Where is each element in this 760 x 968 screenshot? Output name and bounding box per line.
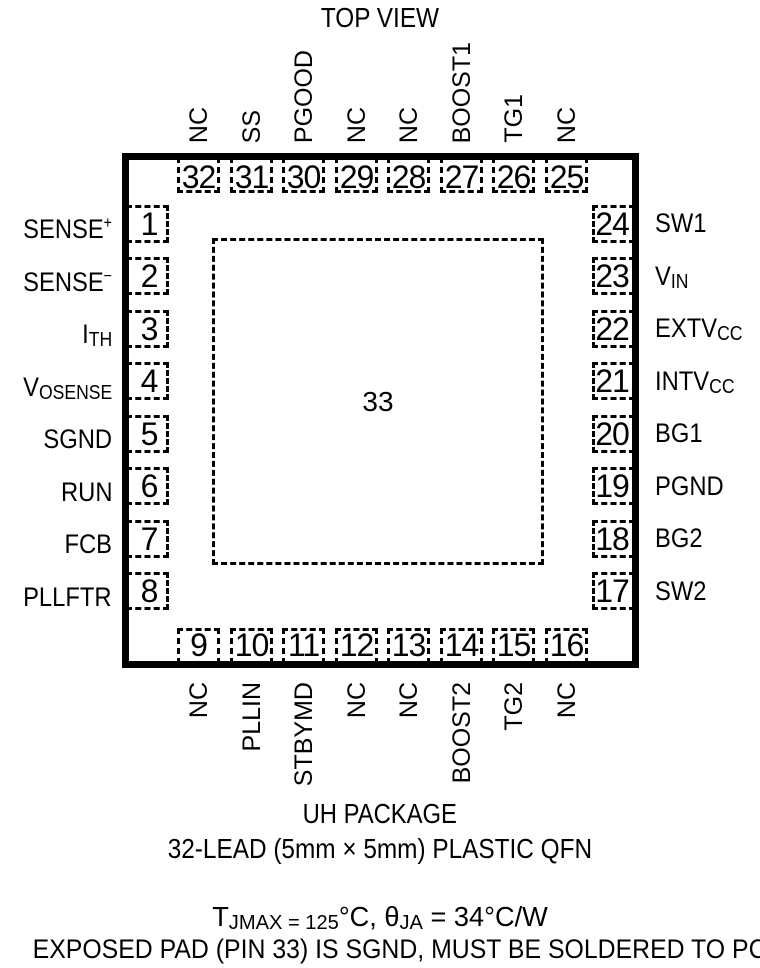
pin-box-4: 4 xyxy=(126,362,169,400)
pin-number-1: 1 xyxy=(141,208,158,240)
pin-box-18: 18 xyxy=(592,520,635,558)
label-sup: + xyxy=(104,214,112,232)
pin-label-3: ITH xyxy=(78,311,112,345)
pin-number-15: 15 xyxy=(497,629,531,661)
exposed-pad-note: EXPOSED PAD (PIN 33) IS SGND, MUST BE SO… xyxy=(0,934,760,964)
pin-label-13: NC xyxy=(394,682,424,718)
pin-label-15: TG2 xyxy=(499,682,529,731)
pin-box-13: 13 xyxy=(387,628,430,664)
thermal-theta-sub: JA xyxy=(400,911,423,934)
label-base: V xyxy=(655,261,671,291)
top-view-title-text: TOP VIEW xyxy=(321,3,439,33)
pin-label-23: VIN xyxy=(655,259,693,293)
pin-label-25: NC xyxy=(552,107,582,143)
label-sub: CC xyxy=(709,376,734,398)
label-sub: OSENSE xyxy=(39,382,112,404)
pin-label-21: INTVCC xyxy=(655,364,745,398)
pin-label-10: PLLIN xyxy=(237,682,267,751)
pin-number-13: 13 xyxy=(392,629,426,661)
label-base: PLLFTR xyxy=(24,582,112,612)
exposed-pad: 33 xyxy=(212,238,544,565)
package-outline: 32 31 30 29 28 27 26 25 1 2 3 4 5 6 7 8 … xyxy=(122,153,639,668)
pin-label-5: SGND xyxy=(34,416,112,450)
pin-box-23: 23 xyxy=(592,257,635,295)
pin-number-24: 24 xyxy=(595,208,629,240)
pin-box-32: 32 xyxy=(177,157,220,193)
pin-box-1: 1 xyxy=(126,205,169,243)
label-sub: TH xyxy=(89,329,112,351)
label-base: SENSE xyxy=(23,214,104,244)
pin-number-14: 14 xyxy=(445,629,479,661)
pin-number-32: 32 xyxy=(182,161,216,193)
pin-label-20: BG1 xyxy=(655,416,709,450)
pin-box-24: 24 xyxy=(592,205,635,243)
qfn-pinout-figure: TOP VIEW NC SS PGOOD NC NC BOOST1 TG1 NC… xyxy=(0,0,760,968)
pin-number-4: 4 xyxy=(141,365,158,397)
package-description: 32-LEAD (5mm × 5mm) PLASTIC QFN xyxy=(0,834,760,864)
pin-box-30: 30 xyxy=(282,157,325,193)
pin-label-4: VOSENSE xyxy=(11,364,112,398)
thermal-t: T xyxy=(212,901,229,932)
pin-number-19: 19 xyxy=(595,470,629,502)
pin-label-29: NC xyxy=(342,107,372,143)
pin-label-30: PGOOD xyxy=(289,50,319,143)
thermal-note-text: TJMAX = 125°C, θJA = 34°C/W xyxy=(212,902,548,935)
thermal-tail: = 34°C/W xyxy=(423,901,548,932)
pin-box-17: 17 xyxy=(592,572,635,610)
pin-number-27: 27 xyxy=(445,161,479,193)
pin-label-11: STBYMD xyxy=(289,682,319,786)
pin-box-9: 9 xyxy=(177,628,220,664)
pin-box-14: 14 xyxy=(440,628,483,664)
pin-label-18: BG2 xyxy=(655,521,709,555)
pin-number-25: 25 xyxy=(550,161,584,193)
pin-label-2: SENSE− xyxy=(11,259,112,293)
thermal-mid: °C, θ xyxy=(339,901,400,932)
thermal-t-sub: JMAX = 125 xyxy=(229,911,339,934)
label-base: EXTV xyxy=(655,313,717,343)
pin-number-28: 28 xyxy=(392,161,426,193)
exposed-pad-number: 33 xyxy=(362,386,393,418)
pin-box-7: 7 xyxy=(126,520,169,558)
package-name: UH PACKAGE xyxy=(0,799,760,829)
label-sup: − xyxy=(104,267,112,285)
pin-label-1: SENSE+ xyxy=(11,206,112,240)
label-base: FCB xyxy=(64,529,112,559)
pin-number-5: 5 xyxy=(141,418,158,450)
pin-box-20: 20 xyxy=(592,415,635,453)
pin-number-16: 16 xyxy=(550,629,584,661)
thermal-note: TJMAX = 125°C, θJA = 34°C/W xyxy=(0,902,760,935)
label-base: I xyxy=(82,319,89,349)
top-view-title: TOP VIEW xyxy=(0,3,760,33)
pin-box-27: 27 xyxy=(440,157,483,193)
label-base: SENSE xyxy=(23,267,104,297)
pin-box-22: 22 xyxy=(592,310,635,348)
pin-box-28: 28 xyxy=(387,157,430,193)
pin-number-8: 8 xyxy=(141,575,158,607)
pin-number-3: 3 xyxy=(141,313,158,345)
pin-label-9: NC xyxy=(184,682,214,718)
pin-box-26: 26 xyxy=(492,157,535,193)
label-base: V xyxy=(23,372,39,402)
pin-label-16: NC xyxy=(552,682,582,718)
pin-label-31: SS xyxy=(237,110,267,143)
label-base: BG2 xyxy=(655,523,703,553)
pin-number-10: 10 xyxy=(235,629,269,661)
pin-label-22: EXTVCC xyxy=(655,311,754,345)
pin-box-11: 11 xyxy=(282,628,325,664)
pin-label-8: PLLFTR xyxy=(11,574,112,608)
pin-label-12: NC xyxy=(342,682,372,718)
label-sub: IN xyxy=(671,271,689,293)
label-base: SW1 xyxy=(655,208,706,238)
label-base: RUN xyxy=(61,477,112,507)
pin-label-7: FCB xyxy=(58,521,112,555)
label-sub: CC xyxy=(717,323,742,345)
label-base: INTV xyxy=(655,366,709,396)
package-name-text: UH PACKAGE xyxy=(303,799,457,829)
label-base: BG1 xyxy=(655,418,703,448)
pin-label-17: SW2 xyxy=(655,574,714,608)
pin-box-21: 21 xyxy=(592,362,635,400)
exposed-pad-note-text: EXPOSED PAD (PIN 33) IS SGND, MUST BE SO… xyxy=(33,934,760,964)
pin-box-8: 8 xyxy=(126,572,169,610)
pin-number-9: 9 xyxy=(190,629,207,661)
pin-box-25: 25 xyxy=(545,157,588,193)
pin-number-18: 18 xyxy=(595,523,629,555)
pin-box-16: 16 xyxy=(545,628,588,664)
label-base: SW2 xyxy=(655,576,706,606)
pin-label-24: SW1 xyxy=(655,206,714,240)
label-base: PGND xyxy=(655,471,724,501)
pin-box-2: 2 xyxy=(126,257,169,295)
pin-box-15: 15 xyxy=(492,628,535,664)
pin-box-31: 31 xyxy=(230,157,273,193)
pin-number-11: 11 xyxy=(288,629,319,661)
pin-box-6: 6 xyxy=(126,467,169,505)
pin-number-22: 22 xyxy=(595,313,629,345)
pin-box-5: 5 xyxy=(126,415,169,453)
pin-number-12: 12 xyxy=(340,629,374,661)
pin-number-26: 26 xyxy=(497,161,531,193)
pin-box-10: 10 xyxy=(230,628,273,664)
pin-number-23: 23 xyxy=(595,260,629,292)
pin-number-29: 29 xyxy=(340,161,374,193)
pin-number-6: 6 xyxy=(141,470,158,502)
pin-number-7: 7 xyxy=(141,523,158,555)
pin-label-27: BOOST1 xyxy=(447,42,477,143)
pin-label-19: PGND xyxy=(655,469,733,503)
pin-label-14: BOOST2 xyxy=(447,682,477,783)
pin-box-3: 3 xyxy=(126,310,169,348)
package-description-text: 32-LEAD (5mm × 5mm) PLASTIC QFN xyxy=(168,834,592,864)
label-base: SGND xyxy=(43,424,112,454)
pin-box-19: 19 xyxy=(592,467,635,505)
pin-label-28: NC xyxy=(394,107,424,143)
pin-number-17: 17 xyxy=(595,575,629,607)
pin-box-29: 29 xyxy=(335,157,378,193)
pin-number-30: 30 xyxy=(287,161,321,193)
pin-number-31: 31 xyxy=(235,161,269,193)
pin-label-26: TG1 xyxy=(499,94,529,143)
pin-number-2: 2 xyxy=(141,260,158,292)
pin-number-20: 20 xyxy=(595,418,629,450)
pin-label-32: NC xyxy=(184,107,214,143)
pin-label-6: RUN xyxy=(54,469,113,503)
pin-box-12: 12 xyxy=(335,628,378,664)
pin-number-21: 21 xyxy=(595,365,629,397)
